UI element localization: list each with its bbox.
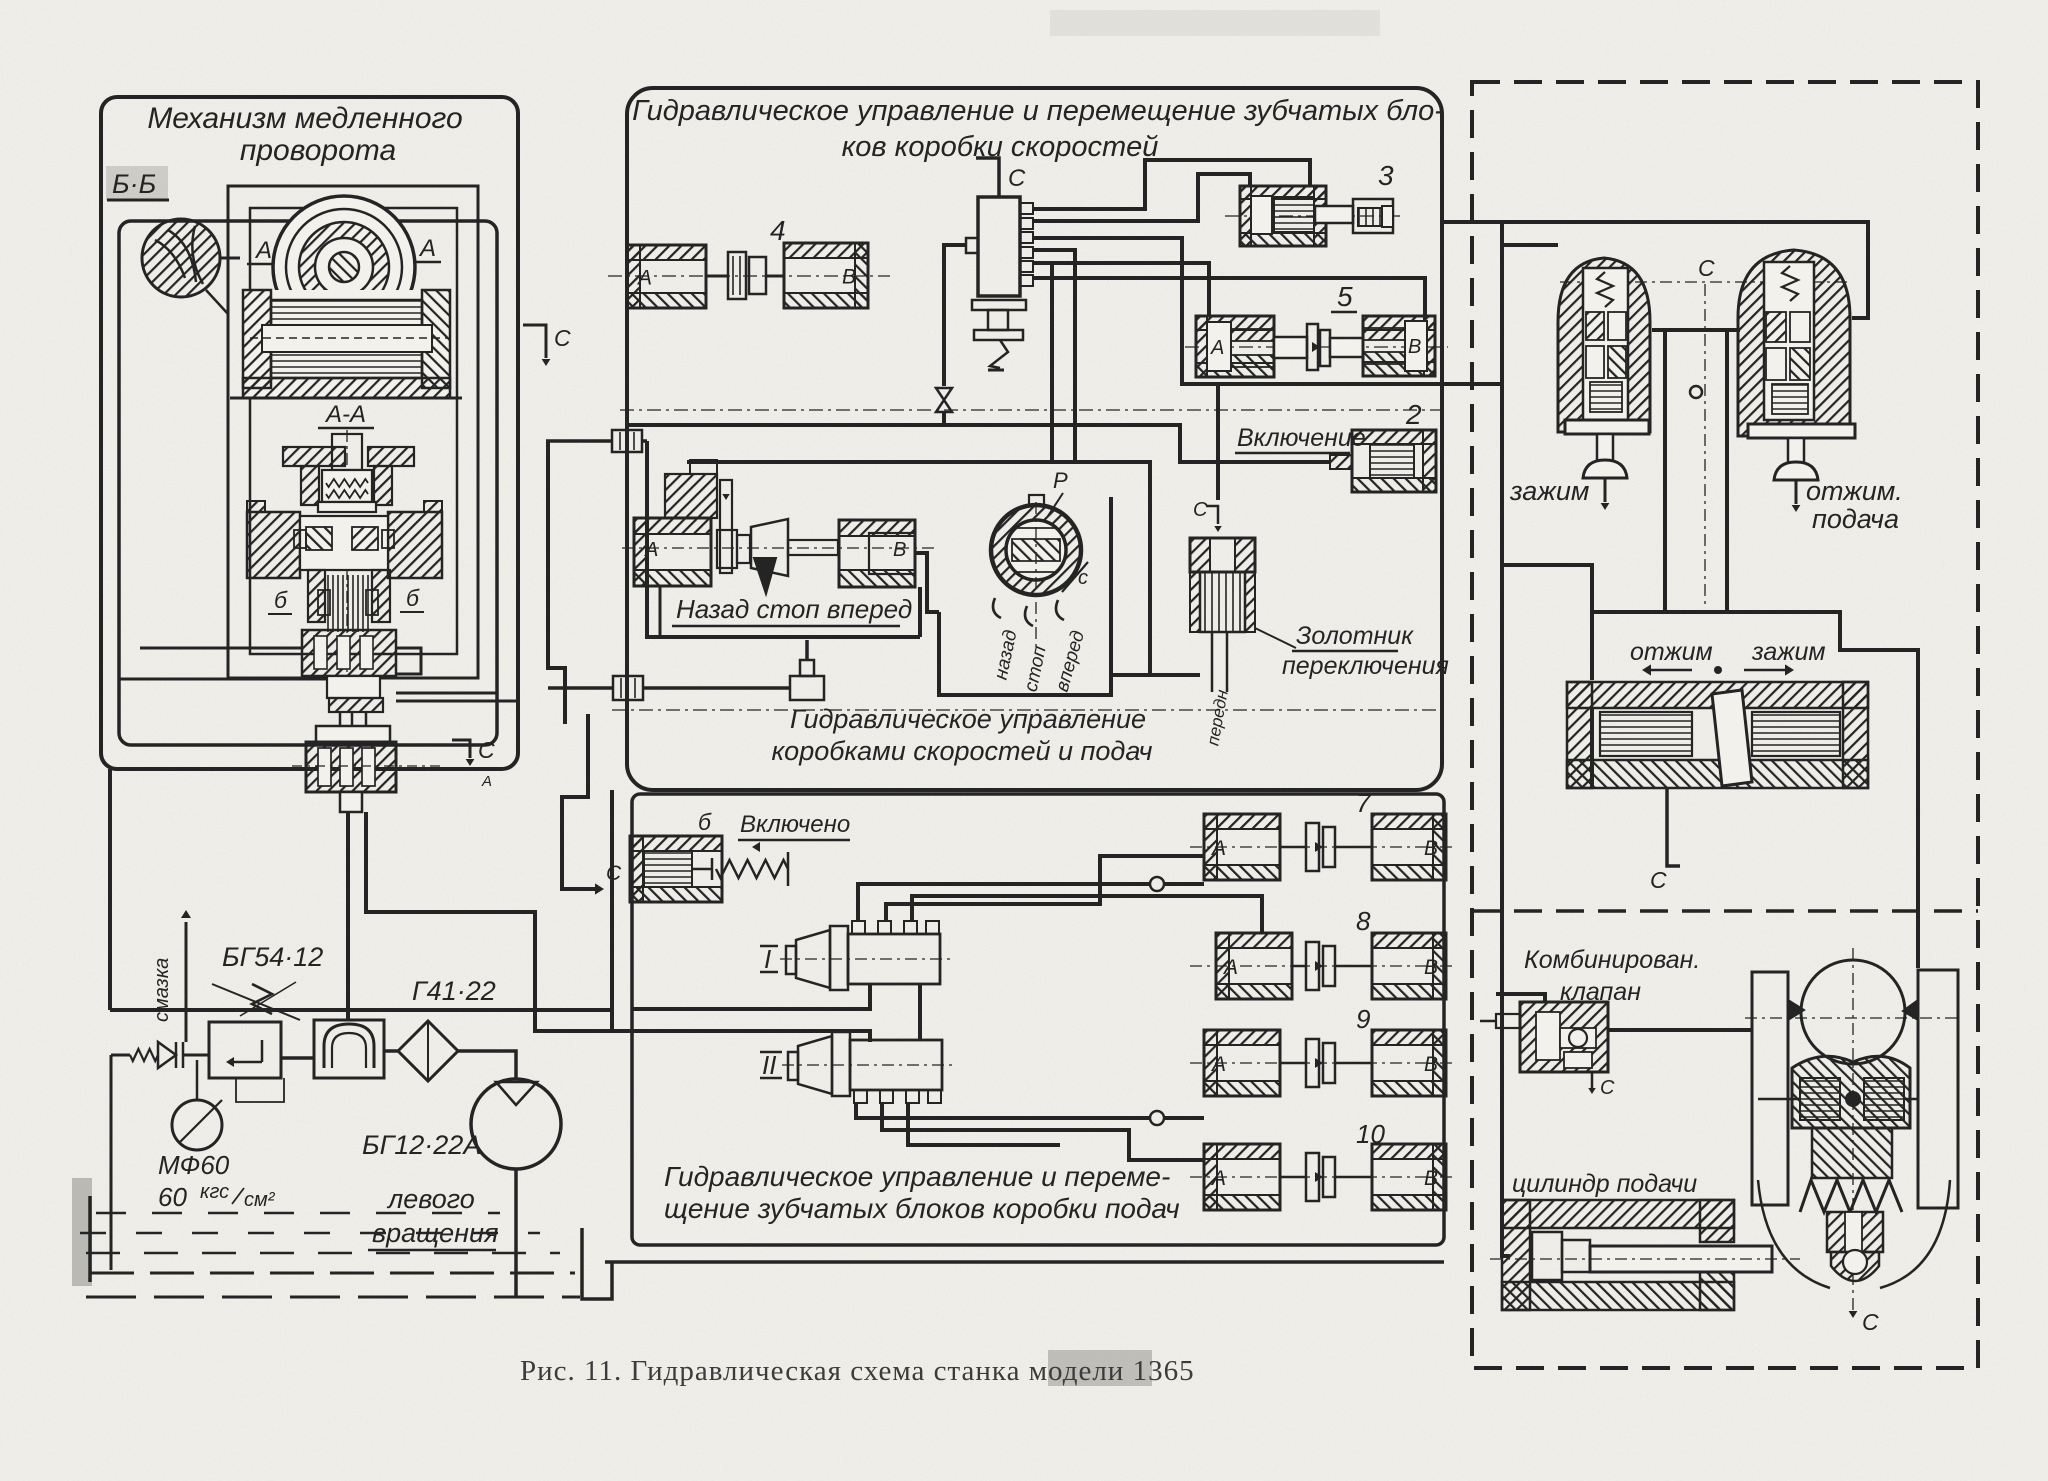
svg-text:БГ12·22А: БГ12·22А — [362, 1130, 481, 1160]
svg-text:С: С — [554, 325, 571, 351]
svg-text:А: А — [1210, 1167, 1226, 1190]
svg-text:2: 2 — [1405, 399, 1422, 430]
svg-text:I: I — [764, 944, 771, 974]
svg-text:отжим.: отжим. — [1806, 476, 1903, 506]
svg-text:А: А — [636, 267, 652, 290]
svg-text:В: В — [1408, 336, 1421, 358]
svg-text:Механизм медленного: Механизм медленного — [147, 102, 462, 135]
svg-text:Включение: Включение — [1237, 424, 1366, 452]
svg-text:подача: подача — [1812, 504, 1899, 534]
svg-text:Г41·22: Г41·22 — [412, 976, 496, 1006]
svg-text:С: С — [1193, 499, 1208, 521]
svg-text:С: С — [606, 862, 622, 885]
svg-text:4: 4 — [770, 215, 786, 246]
svg-text:зажим: зажим — [1509, 476, 1589, 506]
svg-text:левого: левого — [386, 1184, 475, 1214]
svg-text:3: 3 — [1378, 160, 1394, 191]
svg-text:А: А — [1210, 1053, 1226, 1076]
svg-text:А: А — [254, 237, 272, 264]
svg-text:кгс: кгс — [200, 1181, 229, 1203]
svg-text:МФ60: МФ60 — [158, 1150, 230, 1180]
svg-text:II: II — [762, 1050, 776, 1080]
svg-text:Рис. 11. Гидравлическая схе: Рис. 11. Гидравлическая схема станка мод… — [520, 1355, 1195, 1387]
svg-text:В: В — [893, 539, 906, 561]
svg-text:Гидравлическое управление и: Гидравлическое управление и переме- — [664, 1161, 1170, 1192]
svg-text:б: б — [274, 587, 288, 613]
svg-text:цилиндр подачи: цилиндр подачи — [1512, 1170, 1697, 1198]
svg-text:В: В — [1424, 1167, 1438, 1190]
svg-text:б: б — [698, 809, 712, 835]
svg-text:Р: Р — [1053, 468, 1068, 493]
svg-text:переключения: переключения — [1282, 652, 1449, 680]
svg-text:щение зубчатых блоков короб: щение зубчатых блоков коробки подач — [664, 1193, 1180, 1224]
svg-text:см²: см² — [244, 1189, 276, 1211]
svg-text:А: А — [1210, 837, 1226, 860]
svg-text:Б·Б: Б·Б — [112, 169, 156, 199]
svg-text:б: б — [406, 585, 420, 611]
svg-text:Включено: Включено — [740, 811, 850, 838]
svg-text:9: 9 — [1356, 1004, 1370, 1034]
svg-text:7: 7 — [1356, 788, 1372, 818]
svg-text:60: 60 — [158, 1182, 187, 1212]
svg-text:зажим: зажим — [1751, 638, 1826, 666]
svg-text:Гидравлическое управление и: Гидравлическое управление и перемещение … — [632, 95, 1444, 127]
svg-text:А: А — [418, 235, 436, 262]
svg-text:С: С — [1650, 867, 1667, 893]
svg-text:8: 8 — [1356, 906, 1371, 936]
svg-text:Комбинирован.: Комбинирован. — [1524, 946, 1700, 974]
svg-text:смазка: смазка — [151, 958, 173, 1022]
svg-text:В: В — [1424, 1053, 1438, 1076]
svg-text:В: В — [1424, 956, 1438, 979]
svg-text:С: С — [1600, 1077, 1615, 1099]
svg-text:отжим: отжим — [1630, 638, 1713, 666]
svg-text:С: С — [1862, 1309, 1879, 1335]
svg-text:БГ54·12: БГ54·12 — [222, 942, 323, 972]
svg-text:Золотник: Золотник — [1296, 622, 1414, 650]
svg-text:Назад стоп вперед: Назад стоп вперед — [676, 594, 912, 624]
svg-text:А: А — [481, 773, 492, 790]
svg-text:В: В — [1424, 837, 1438, 860]
svg-text:5: 5 — [1337, 281, 1353, 312]
svg-text:10: 10 — [1356, 1119, 1385, 1149]
svg-text:С: С — [1008, 165, 1026, 192]
svg-text:А-А: А-А — [324, 401, 366, 428]
svg-text:проворота: проворота — [240, 134, 396, 167]
svg-text:С: С — [478, 737, 495, 763]
svg-text:С: С — [1698, 255, 1715, 281]
svg-text:А: А — [1222, 956, 1238, 979]
svg-text:коробками скоростей и подач: коробками скоростей и подач — [771, 736, 1152, 766]
svg-text:Гидравлическое управление: Гидравлическое управление — [790, 704, 1146, 734]
svg-text:В: В — [842, 266, 856, 289]
svg-text:А: А — [1210, 337, 1224, 359]
